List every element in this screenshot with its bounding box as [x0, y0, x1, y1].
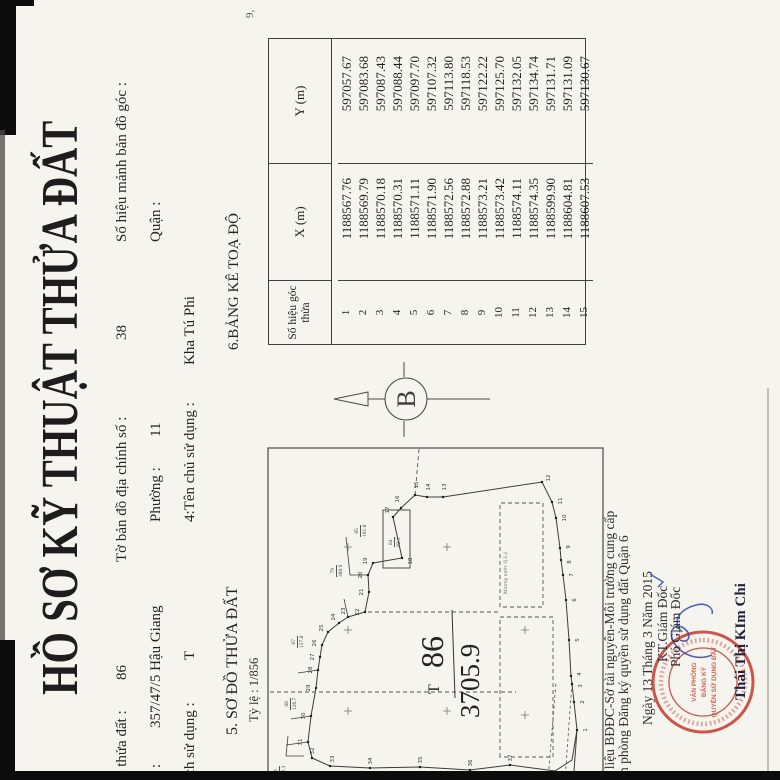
scan-edge-bottom — [0, 771, 780, 780]
table-row: 101188573.42597125.70 — [491, 39, 508, 344]
table-row: 151188607.53597130.67 — [576, 39, 593, 344]
point-number-cell: 10 — [491, 280, 508, 344]
y-coordinate-cell: 597087.43 — [373, 39, 389, 163]
vertex-dot — [321, 644, 323, 646]
vertex-dot — [426, 496, 428, 498]
scan-edge-character: 9, — [244, 10, 256, 18]
coordinate-table-header: Số hiệu góc thửa X (m) Y (m) — [269, 39, 332, 344]
scan-edge-left-bottom — [0, 640, 15, 780]
vertex-number: 15 — [414, 481, 420, 488]
table-row: 61188571.90597107.32 — [423, 39, 440, 344]
vertex-number: 8 — [567, 560, 573, 564]
vertex-number: 34 — [368, 757, 374, 764]
vertex-dot — [319, 656, 321, 658]
owner-value: Kha Tú Phi — [182, 296, 199, 365]
x-coordinate-cell: 1188604.81 — [559, 163, 576, 280]
y-coordinate-cell: 597057.67 — [339, 39, 355, 163]
vertex-number: 33 — [330, 755, 336, 762]
district-label: Quận : — [148, 202, 165, 242]
dashed-parcel-a — [500, 617, 553, 757]
vertex-number: 28 — [308, 666, 314, 673]
north-letter: B — [392, 390, 421, 407]
vertex-number: 11 — [558, 498, 564, 505]
map-street-label: Mương nước Q.Lộ — [504, 552, 509, 594]
x-coordinate-cell: 1188572.56 — [440, 163, 457, 280]
page-title: HỒ SƠ KỸ THUẬT THỬA ĐẤT — [28, 121, 93, 695]
y-coordinate-cell: 597113.80 — [441, 39, 457, 163]
vertex-dot — [570, 675, 572, 677]
table-row: 91188573.21597122.22 — [474, 39, 491, 344]
vertex-dot — [310, 715, 312, 717]
point-number-cell: 2 — [355, 280, 372, 344]
document-page: B VĂN PHÒNG ĐĂNG KÝ QUYỀN SỬ DỤNG ĐẤT 12… — [0, 0, 780, 780]
signer-name: Thái Thị KIm Chi — [733, 583, 750, 700]
vertex-dot — [560, 559, 562, 561]
point-number-cell: 15 — [576, 280, 593, 344]
column-header-y: Y (m) — [269, 39, 331, 163]
vertex-dot — [576, 729, 578, 731]
vertex-dot — [364, 611, 366, 613]
vertex-number: 2 — [580, 700, 586, 704]
neighbor-parcel-label: 85161.8 — [354, 525, 368, 537]
vertex-dot — [541, 481, 543, 483]
x-coordinate-cell: 1188574.11 — [508, 163, 525, 280]
vertex-number: 31 — [298, 739, 304, 746]
vertex-number: 30 — [301, 712, 307, 719]
point-number-cell: 14 — [559, 280, 576, 344]
point-number-cell: 12 — [525, 280, 542, 344]
neighbor-parcel-area: 161.8 — [360, 525, 368, 537]
x-coordinate-cell: 1188569.79 — [355, 163, 372, 280]
x-coordinate-cell: 1188571.11 — [406, 163, 423, 280]
y-coordinate-cell: 597118.53 — [458, 39, 474, 163]
vertex-number: 1 — [583, 728, 589, 732]
table-row: 141188604.81597131.09 — [559, 39, 576, 344]
y-coordinate-cell: 597125.70 — [492, 39, 508, 163]
point-number-cell: 3 — [372, 280, 389, 344]
point-number-cell: 11 — [508, 280, 525, 344]
map-landuse-mark: T — [426, 684, 444, 694]
point-number-cell: 4 — [389, 280, 406, 344]
parcel-number-value: 86 — [114, 665, 131, 680]
stamp-text-3: QUYỀN SỬ DỤNG ĐẤT — [708, 647, 718, 718]
neighbor-parcel-area: 92.1 — [394, 537, 402, 547]
table-row: 51188571.11597097.70 — [406, 39, 423, 344]
vertex-dot — [401, 557, 403, 559]
vertex-dot — [573, 701, 575, 703]
data-source-line-2: ăn phòng Đăng ký quyền sử dụng đất Quận … — [616, 535, 632, 780]
vertex-number: 17 — [385, 506, 391, 513]
y-coordinate-cell: 597083.68 — [356, 39, 372, 163]
vertex-markers: 1234567891011121314151617181920212223242… — [298, 475, 589, 772]
y-coordinate-cell: 597107.32 — [424, 39, 440, 163]
vertex-number: 6 — [572, 598, 578, 602]
vertex-dot — [562, 574, 564, 576]
vertex-dot — [551, 501, 553, 503]
grid-cross-icon — [344, 626, 352, 634]
owner-label: 4:Tên chủ sử dụng : — [182, 402, 199, 522]
vertex-number: 4 — [577, 672, 583, 676]
vertex-dot — [565, 599, 567, 601]
scan-edge-left-mid — [0, 130, 5, 645]
vertex-number: 9 — [566, 545, 572, 549]
neighbor-parcel-label: 79380.9 — [330, 565, 344, 577]
vertex-dot — [555, 517, 557, 519]
column-header-x: X (m) — [269, 163, 331, 280]
table-section-heading: 6.BẢNG KÊ TOẠ ĐỘ — [226, 213, 243, 350]
vertex-number: 13 — [442, 483, 448, 490]
point-number-cell: 7 — [440, 280, 457, 344]
vertex-number: 19 — [363, 557, 369, 564]
ward-label: Phường : — [148, 467, 165, 522]
vertex-number: 14 — [426, 483, 432, 490]
date-line: Ngày 13 Tháng 3 Năm 2015 — [640, 571, 656, 725]
x-coordinate-cell: 1188599.90 — [542, 163, 559, 280]
table-row: 41188570.31597088.44 — [389, 39, 406, 344]
neighbor-parcel-area: 126.7 — [290, 698, 298, 710]
vertex-dot — [400, 507, 402, 509]
map-sheet-label: Tờ bản đồ địa chính số : — [114, 417, 131, 562]
table-row: 121188574.35597134.74 — [525, 39, 542, 344]
scan-edge-left-top — [0, 0, 16, 135]
x-coordinate-cell: 1188571.90 — [423, 163, 440, 280]
vertex-number: 36 — [468, 759, 474, 766]
point-number-cell: 9 — [474, 280, 491, 344]
point-number-cell: 6 — [423, 280, 440, 344]
point-number-cell: 1 — [338, 280, 355, 344]
vertex-number: 27 — [310, 653, 316, 660]
vertex-dot — [315, 687, 317, 689]
y-coordinate-cell: 597132.05 — [509, 39, 525, 163]
vertex-number: 22 — [355, 609, 361, 616]
vertex-dot — [367, 574, 369, 576]
table-row: 31188570.18597087.43 — [372, 39, 389, 344]
map-scale-label: Tỷ lệ : 1/856 — [247, 658, 262, 722]
point-number-cell: 13 — [542, 280, 559, 344]
signature-title-2: Phó Giám Đốc — [668, 587, 684, 667]
vertex-number: 26 — [312, 639, 318, 646]
stamp-text-2: ĐĂNG KÝ — [699, 666, 708, 697]
y-coordinate-cell: 597122.22 — [475, 39, 491, 163]
vertex-dot — [338, 622, 340, 624]
vertex-number: 5 — [575, 638, 581, 642]
y-coordinate-cell: 597131.71 — [543, 39, 559, 163]
table-row: 21188569.79597083.68 — [355, 39, 372, 344]
vertex-number: 25 — [319, 624, 325, 631]
vertex-dot — [372, 562, 374, 564]
parcel-number-label: u thửa đất : — [114, 710, 131, 778]
vertex-number: 32 — [310, 748, 316, 755]
point-number-cell: 5 — [406, 280, 423, 344]
y-coordinate-cell: 597134.74 — [526, 39, 542, 163]
landuse-value: T — [182, 651, 199, 660]
coordinate-table-rows: 11188567.76597057.6721188569.79597083.68… — [332, 39, 593, 344]
x-coordinate-cell: 1188573.21 — [474, 163, 491, 280]
scan-edge-top-corner — [0, 0, 34, 6]
address-value: 357/47/5 Hậu Giang — [148, 606, 165, 728]
table-row: 11188567.76597057.67 — [338, 39, 355, 344]
point-number-cell: 8 — [457, 280, 474, 344]
table-row: 111188574.11597132.05 — [508, 39, 525, 344]
vertex-dot — [392, 516, 394, 518]
table-row: 81188572.88597118.53 — [457, 39, 474, 344]
neighbor-parcel-label: 87157.8 — [291, 636, 305, 648]
vertex-dot — [571, 683, 573, 685]
map-sheet-value: 38 — [114, 325, 131, 340]
vertex-dot — [419, 766, 421, 768]
vertex-number: 23 — [341, 607, 347, 614]
vertex-number: 18 — [408, 557, 414, 564]
vertex-dot — [369, 767, 371, 769]
grid-cross-icon — [521, 626, 529, 634]
ward-value: 11 — [148, 423, 165, 437]
grid-cross-icon — [521, 711, 529, 719]
map-parcel-area: 3705.9 — [455, 644, 486, 718]
vertex-number: 3 — [578, 684, 584, 688]
grid-cross-icon — [443, 543, 451, 551]
x-coordinate-cell: 1188570.31 — [389, 163, 406, 280]
vertex-dot — [442, 496, 444, 498]
map-parcel-number: 86 — [414, 636, 451, 668]
vertex-number: 7 — [569, 573, 575, 577]
vertex-dot — [347, 616, 349, 618]
y-coordinate-cell: 597088.44 — [390, 39, 406, 163]
north-arrow-icon: B — [334, 362, 490, 437]
neighbor-parcel-label: 88126.7 — [284, 698, 298, 710]
vertex-number: 35 — [418, 756, 424, 763]
column-header-point: Số hiệu góc thửa — [269, 280, 331, 344]
vertex-number: 20 — [358, 571, 364, 578]
stamp-text-1: VĂN PHÒNG — [689, 662, 698, 701]
vertex-number: 21 — [359, 589, 365, 596]
neighbor-parcel-area: 380.9 — [336, 565, 344, 577]
x-coordinate-cell: 1188572.88 — [457, 163, 474, 280]
vertex-number: 24 — [331, 613, 337, 620]
neighbor-parcel-label: 8492.1 — [388, 537, 402, 547]
map-section-heading: 5. SƠ ĐỒ THỬA ĐẤT — [224, 586, 242, 735]
vertex-dot — [327, 631, 329, 633]
x-coordinate-cell: 1188607.53 — [576, 163, 593, 280]
x-coordinate-cell: 1188570.18 — [372, 163, 389, 280]
vertex-dot — [568, 639, 570, 641]
grid-cross-icon — [344, 707, 352, 715]
vertex-dot — [311, 757, 313, 759]
vertex-dot — [559, 547, 561, 549]
vertex-number: 37 — [508, 754, 514, 761]
table-row: 71188572.56597113.80 — [440, 39, 457, 344]
x-coordinate-cell: 1188567.76 — [338, 163, 355, 280]
y-coordinate-cell: 597131.09 — [560, 39, 576, 163]
vertex-dot — [509, 764, 511, 766]
vertex-dot — [329, 765, 331, 767]
vertex-dot — [368, 591, 370, 593]
coordinate-table: Số hiệu góc thửa X (m) Y (m) 11188567.76… — [268, 38, 586, 345]
vertex-number: 16 — [395, 495, 401, 502]
x-coordinate-cell: 1188573.42 — [491, 163, 508, 280]
vertex-dot — [414, 494, 416, 496]
x-coordinate-cell: 1188574.35 — [525, 163, 542, 280]
y-coordinate-cell: 597130.67 — [577, 39, 593, 163]
grid-cross-icon — [344, 543, 352, 551]
vertex-number: 29 — [306, 684, 312, 691]
neighbor-parcel-area: 157.8 — [297, 636, 305, 648]
landuse-label: ích sử dụng : — [182, 702, 199, 780]
vertex-dot — [307, 741, 309, 743]
vertex-number: 10 — [562, 514, 568, 521]
grid-cross-icon — [443, 707, 451, 715]
corner-sheet-label: Số hiệu mảnh bản đồ góc : — [114, 82, 131, 242]
y-coordinate-cell: 597097.70 — [407, 39, 423, 163]
canal-dashed-lines — [548, 682, 572, 780]
vertex-number: 12 — [546, 475, 552, 482]
table-row: 131188599.90597131.71 — [542, 39, 559, 344]
scanned-document: B VĂN PHÒNG ĐĂNG KÝ QUYỀN SỬ DỤNG ĐẤT 12… — [0, 0, 780, 780]
vertex-dot — [317, 669, 319, 671]
